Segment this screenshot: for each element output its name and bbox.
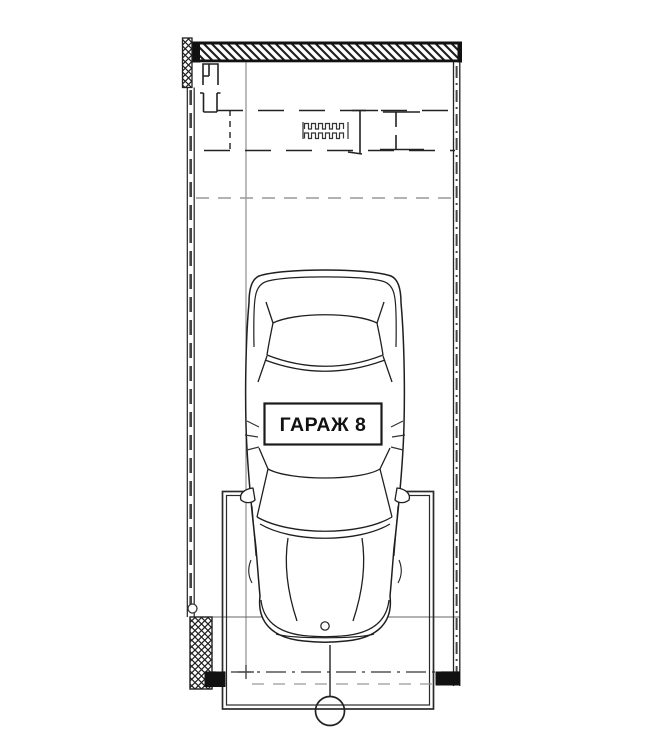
room-label: ГАРАЖ 8	[265, 404, 382, 445]
centerlines	[196, 665, 460, 684]
axis-marker	[316, 645, 345, 726]
mirror-right	[395, 488, 409, 503]
wall-joint-circle	[188, 604, 197, 613]
top-wall-face-outer	[192, 42, 462, 45]
right-wall	[454, 62, 460, 686]
car-body-outline	[246, 270, 405, 642]
top-wall-cap-right	[458, 42, 463, 63]
floor-plan-page: ГАРАЖ 8	[0, 0, 650, 750]
car-top-view	[241, 270, 410, 642]
wall-fixture-icon	[200, 64, 221, 112]
top-wall-hatch	[192, 44, 462, 60]
track-bracket-right	[380, 112, 424, 150]
door-spring-icon	[303, 122, 348, 139]
axis-marker-circle	[316, 697, 345, 726]
corner-pier-crosshatch	[183, 38, 193, 88]
overhead-door-track	[204, 110, 455, 154]
mirror-left	[241, 488, 255, 503]
plan-canvas: ГАРАЖ 8	[0, 0, 650, 750]
track-bracket-mid	[348, 111, 378, 155]
gate-stop-left	[205, 672, 226, 688]
left-wall	[187, 88, 194, 618]
top-wall-face-inner	[192, 60, 462, 63]
room-label-text: ГАРАЖ 8	[280, 414, 367, 436]
top-wall	[191, 42, 462, 63]
grid-tick	[238, 665, 254, 679]
gate-stop-right	[436, 672, 461, 686]
